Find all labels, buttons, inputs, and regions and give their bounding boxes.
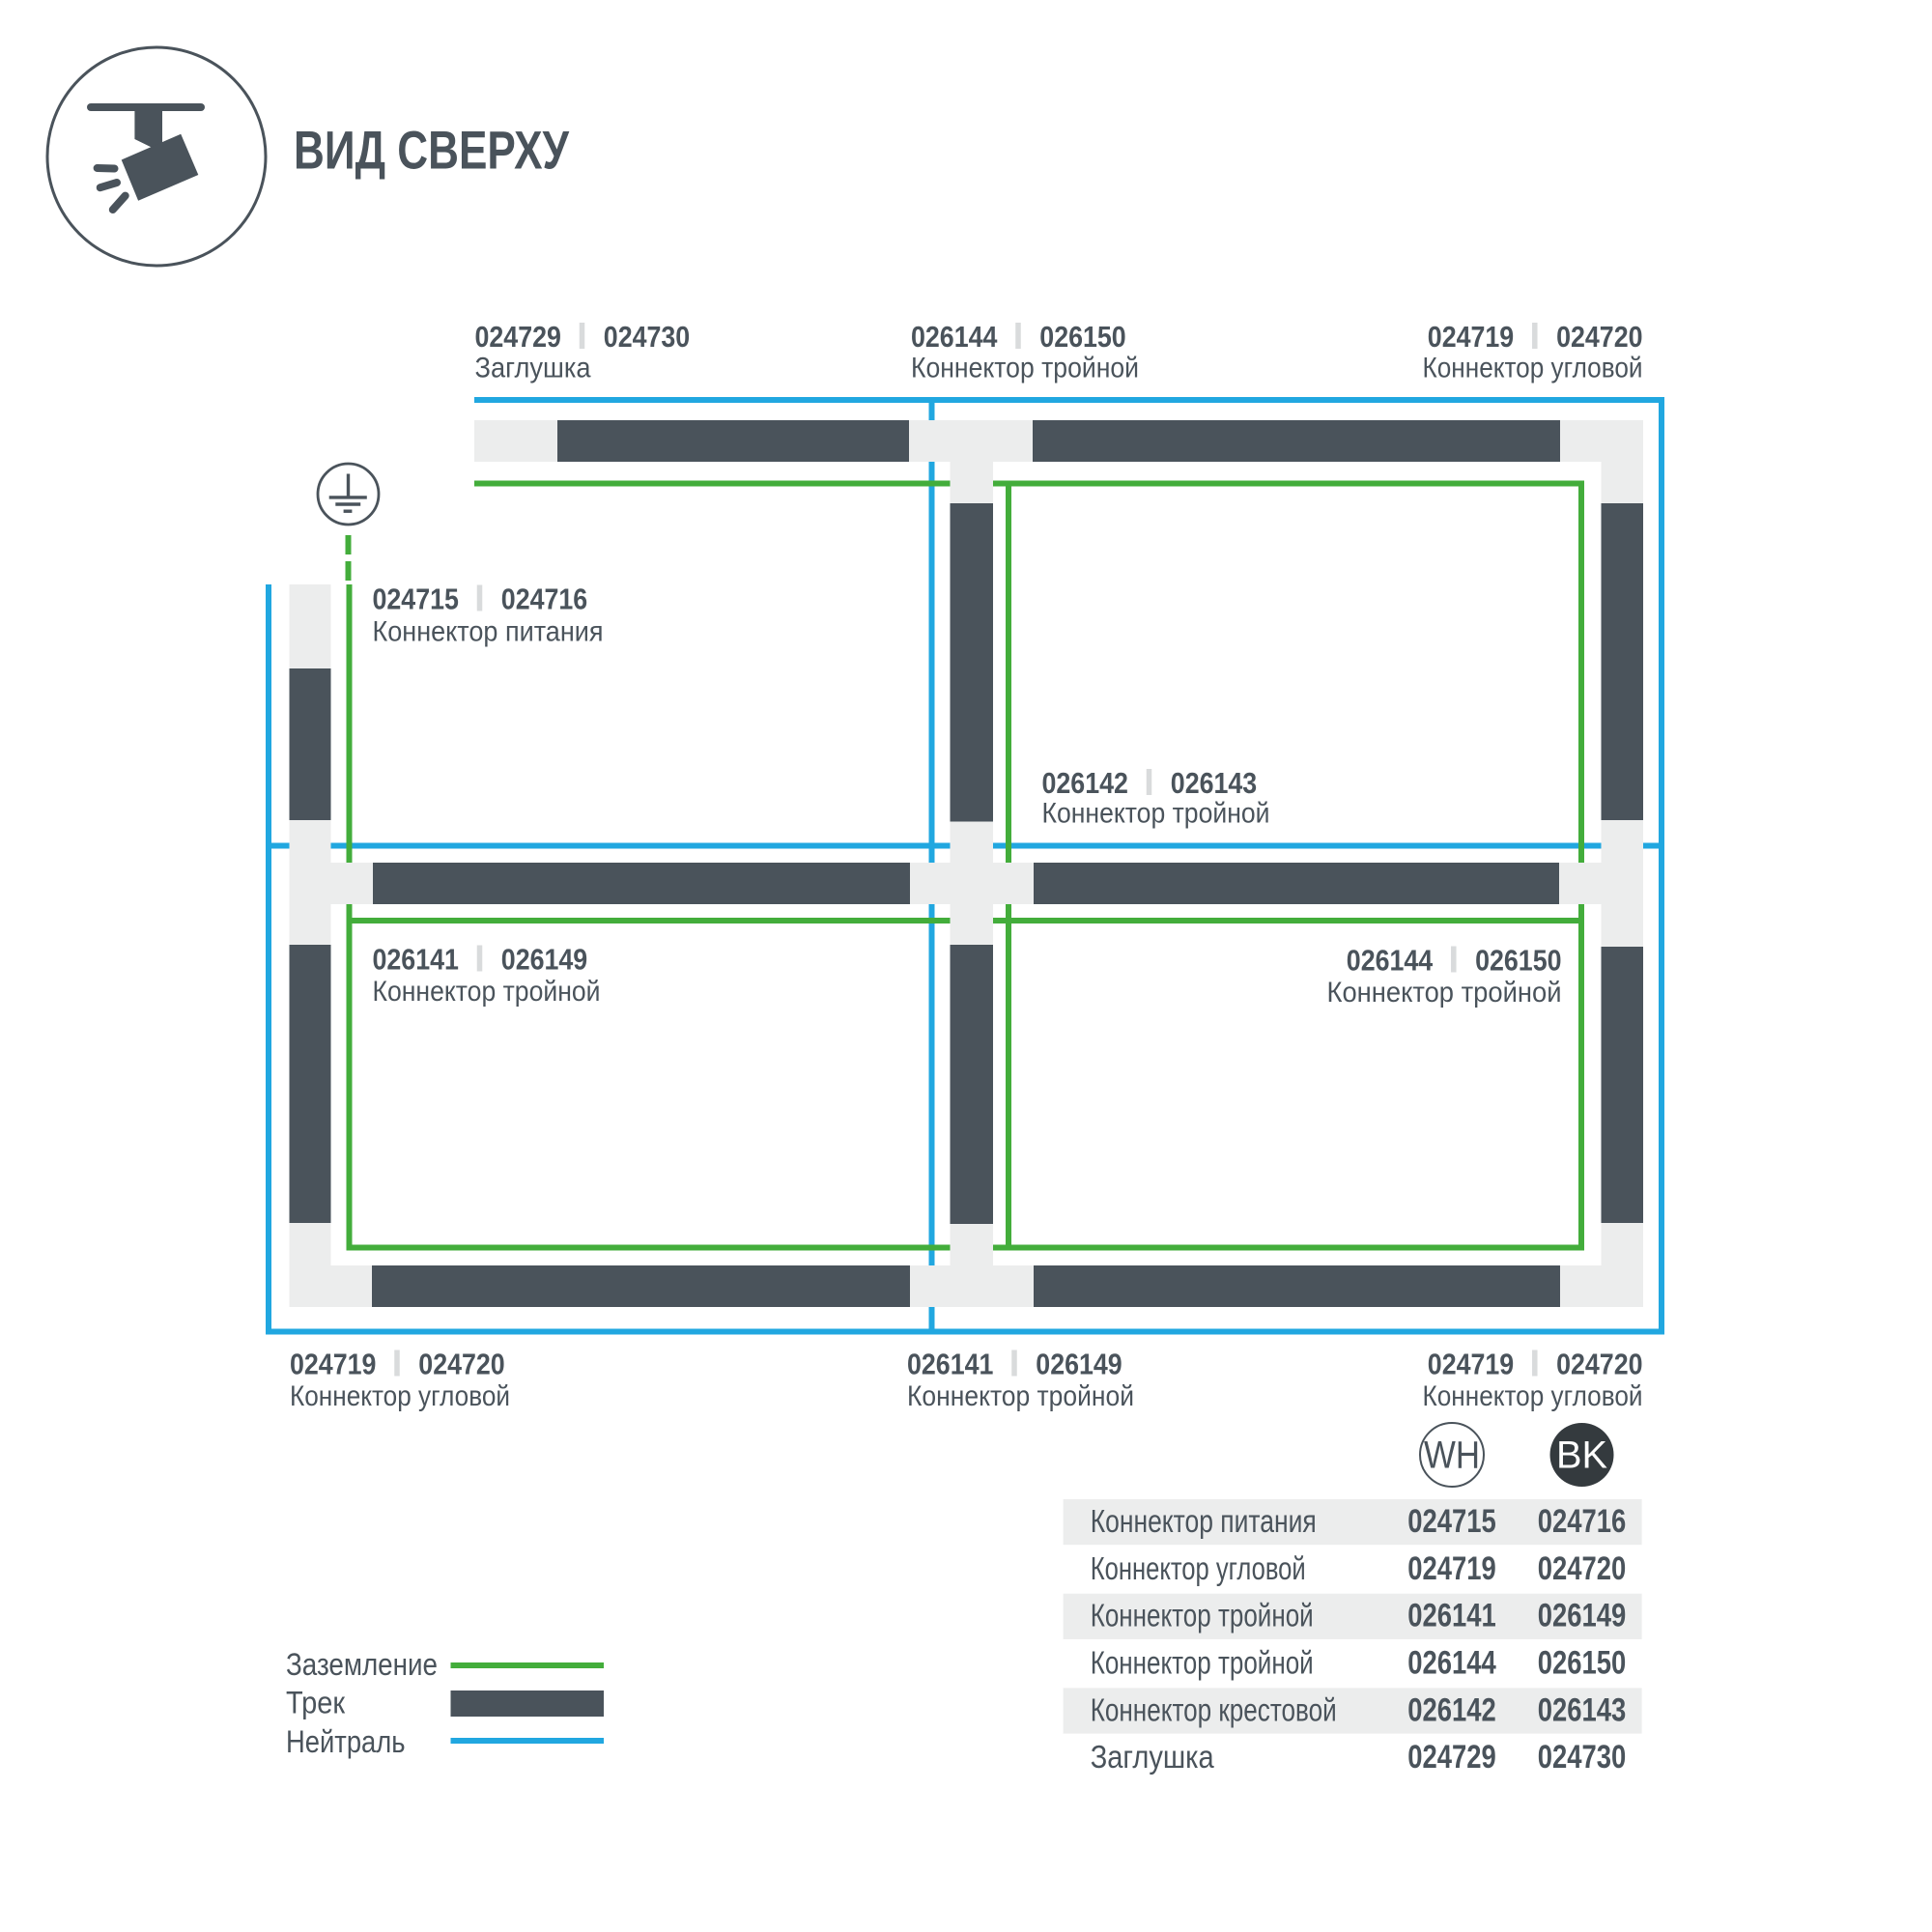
svg-text:Коннектор угловой: Коннектор угловой (1091, 1550, 1306, 1586)
svg-text:Нейтраль: Нейтраль (286, 1724, 406, 1759)
svg-text:Коннектор угловой: Коннектор угловой (290, 1380, 510, 1412)
svg-text:026149: 026149 (1538, 1598, 1627, 1634)
svg-text:WH: WH (1424, 1435, 1480, 1477)
svg-text:024719: 024719 (1428, 1348, 1514, 1381)
svg-text:026150: 026150 (1475, 944, 1561, 978)
svg-text:026144: 026144 (1347, 944, 1434, 978)
svg-text:Коннектор тройной: Коннектор тройной (1091, 1598, 1314, 1634)
svg-text:024715: 024715 (1407, 1503, 1496, 1540)
svg-text:026144: 026144 (911, 320, 998, 354)
svg-text:026141: 026141 (373, 943, 459, 977)
svg-text:Коннектор тройной: Коннектор тройной (373, 976, 601, 1008)
svg-text:026149: 026149 (501, 943, 587, 977)
svg-text:Коннектор тройной: Коннектор тройной (1327, 977, 1562, 1009)
svg-text:Коннектор питания: Коннектор питания (1091, 1503, 1317, 1539)
svg-text:024730: 024730 (1538, 1739, 1627, 1776)
svg-text:024719: 024719 (1407, 1550, 1496, 1587)
svg-text:Коннектор тройной: Коннектор тройной (907, 1380, 1134, 1412)
svg-text:Коннектор тройной: Коннектор тройной (1042, 798, 1270, 830)
svg-text:024716: 024716 (501, 582, 587, 616)
svg-text:Заглушка: Заглушка (1091, 1739, 1215, 1775)
svg-text:Заглушка: Заглушка (475, 353, 591, 384)
svg-text:026142: 026142 (1407, 1691, 1496, 1728)
svg-text:ВИД СВЕРХУ: ВИД СВЕРХУ (294, 120, 570, 181)
svg-text:026149: 026149 (1036, 1348, 1122, 1381)
svg-text:024720: 024720 (1556, 320, 1642, 354)
svg-text:Коннектор угловой: Коннектор угловой (1423, 1380, 1643, 1412)
svg-text:026150: 026150 (1039, 320, 1125, 354)
svg-text:024719: 024719 (1428, 320, 1514, 354)
svg-text:026150: 026150 (1538, 1645, 1627, 1682)
svg-text:024720: 024720 (418, 1348, 504, 1381)
svg-text:024730: 024730 (604, 320, 690, 354)
svg-text:Заземление: Заземление (286, 1647, 438, 1682)
svg-text:026141: 026141 (1407, 1598, 1496, 1634)
svg-text:024729: 024729 (1407, 1739, 1496, 1776)
svg-text:Коннектор угловой: Коннектор угловой (1423, 353, 1643, 384)
svg-text:026143: 026143 (1171, 766, 1257, 800)
svg-text:Коннектор крестовой: Коннектор крестовой (1091, 1691, 1337, 1727)
svg-text:024729: 024729 (475, 320, 561, 354)
svg-text:026141: 026141 (907, 1348, 993, 1381)
svg-text:Коннектор тройной: Коннектор тройной (911, 353, 1139, 384)
svg-text:026144: 026144 (1407, 1645, 1496, 1682)
svg-text:026142: 026142 (1042, 766, 1128, 800)
svg-text:Трек: Трек (286, 1686, 346, 1720)
svg-text:024720: 024720 (1556, 1348, 1642, 1381)
svg-text:026143: 026143 (1538, 1691, 1627, 1728)
svg-text:Коннектор тройной: Коннектор тройной (1091, 1645, 1314, 1681)
svg-text:024716: 024716 (1538, 1503, 1627, 1540)
svg-text:BK: BK (1556, 1435, 1607, 1477)
svg-text:Коннектор питания: Коннектор питания (373, 616, 604, 648)
svg-text:024715: 024715 (373, 582, 459, 616)
svg-text:024720: 024720 (1538, 1550, 1627, 1587)
svg-text:024719: 024719 (290, 1348, 376, 1381)
